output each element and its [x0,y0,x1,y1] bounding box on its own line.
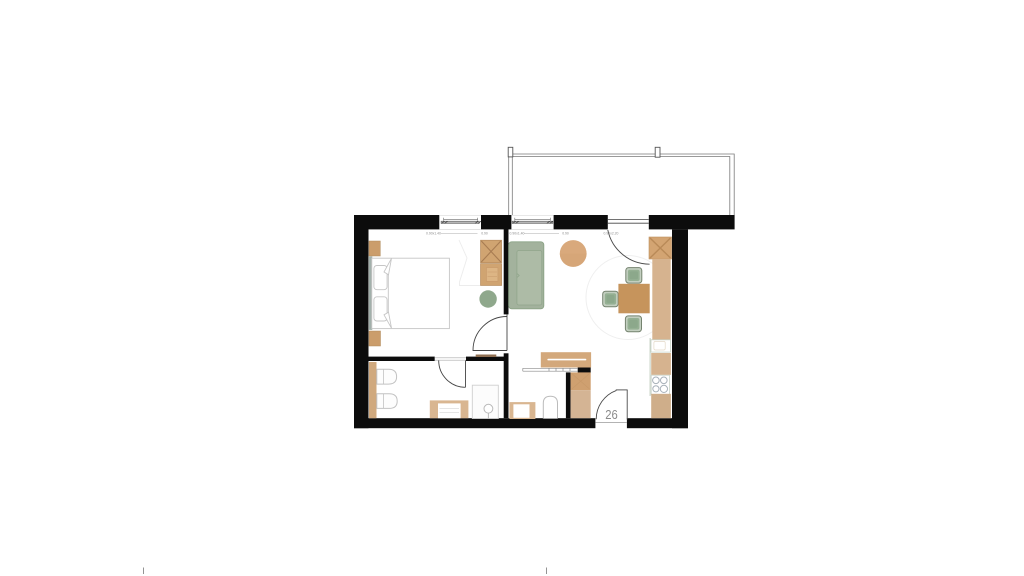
svg-text:0.90x2.20: 0.90x2.20 [604,232,619,236]
svg-text:0.90: 0.90 [481,232,488,236]
svg-text:0.90: 0.90 [562,232,569,236]
svg-text:0.90x1.40: 0.90x1.40 [426,232,441,236]
svg-text:0.90x1.40: 0.90x1.40 [510,232,525,236]
svg-text:26: 26 [605,407,618,422]
